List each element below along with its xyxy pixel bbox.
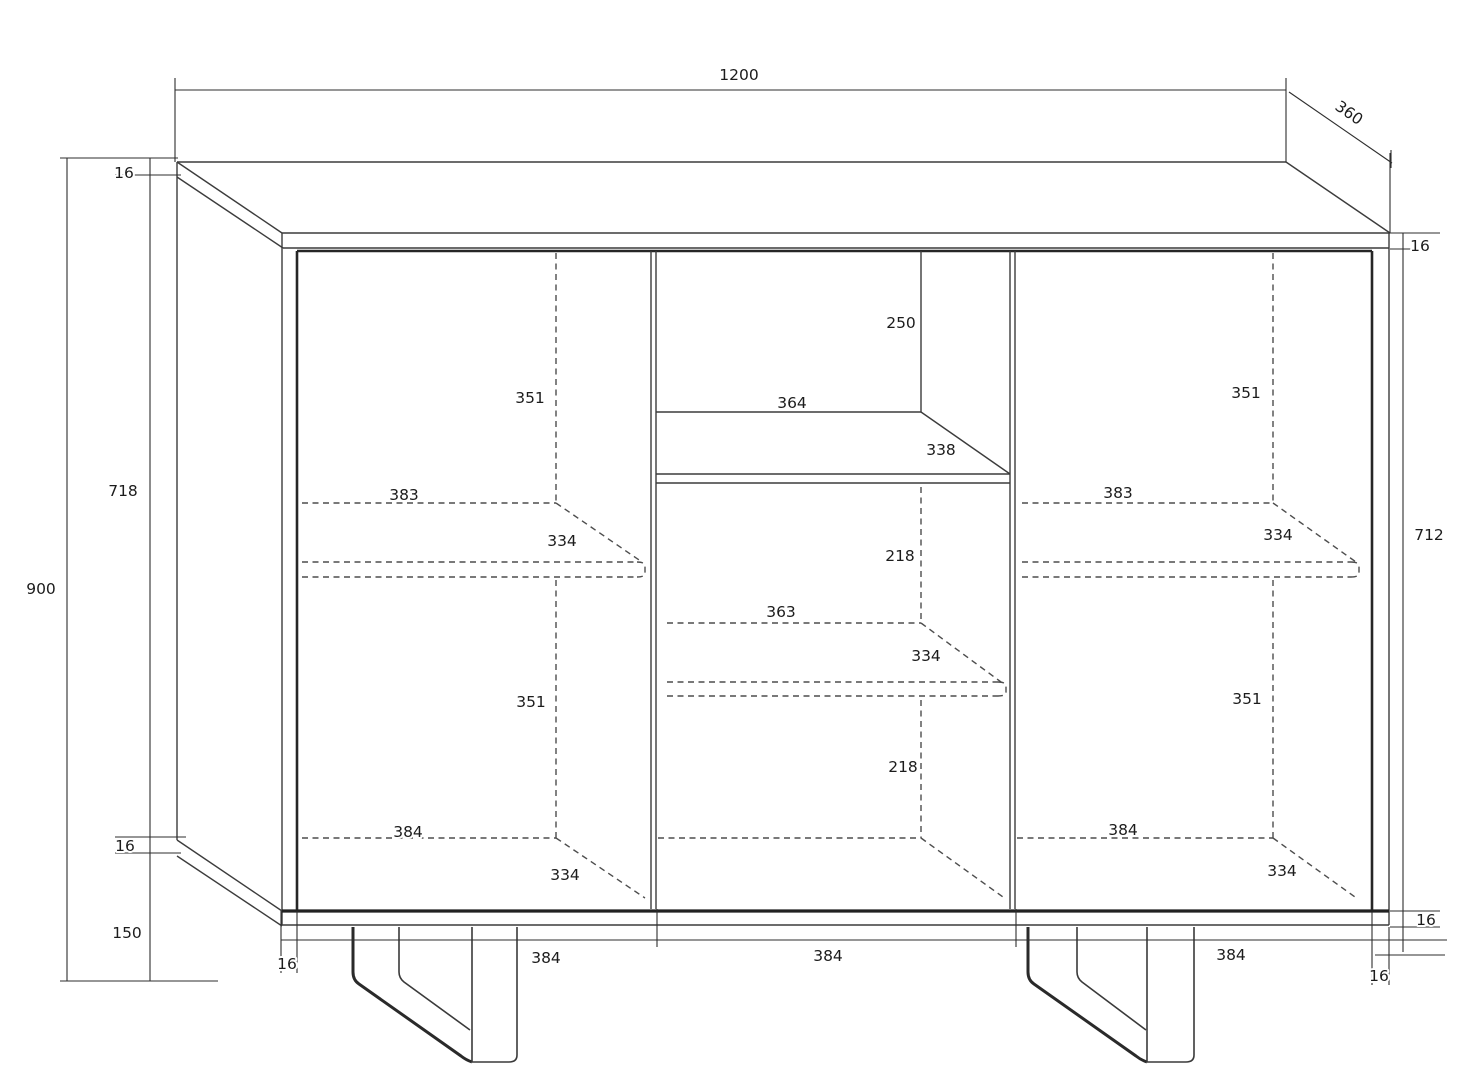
dim-label-door1-bottom-depth: 334 [550, 866, 580, 884]
dim-label-bottom-door1-width: 384 [531, 949, 561, 967]
dim-label-bottom-door3-width: 384 [1216, 946, 1246, 964]
dim-label-left-top-thickness: 16 [114, 164, 134, 182]
dim-label-total-height: 900 [26, 580, 56, 598]
technical-drawing-page: 1200 360 16 718 900 16 150 16 384 384 38… [0, 0, 1480, 1085]
dim-label-door3-lower-height: 351 [1232, 690, 1262, 708]
dim-label-door1-shelf-depth: 334 [547, 532, 577, 550]
left-side-panel-outline [177, 162, 282, 926]
dim-label-bottom-left-side-thickness: 16 [277, 955, 297, 973]
dim-label-door3-bottom-depth: 334 [1267, 862, 1297, 880]
dim-label-right-top-thickness: 16 [1410, 237, 1430, 255]
dim-label-door3-shelf-width: 383 [1103, 484, 1133, 502]
dim-label-door2-upper-height: 218 [885, 547, 915, 565]
dim-label-front-opening-height: 712 [1414, 526, 1444, 544]
dim-label-left-interior-height: 718 [108, 482, 138, 500]
dim-label-door2-shelf-depth: 334 [911, 647, 941, 665]
dim-label-bottom-right-side-thickness: 16 [1369, 967, 1389, 985]
middle-door-hidden-lines [658, 487, 1006, 897]
dim-label-leg-height: 150 [112, 924, 142, 942]
carcass-front-outline [282, 233, 1389, 925]
dim-label-door2-shelf-width: 363 [766, 603, 796, 621]
dim-label-right-bottom-thickness: 16 [1416, 911, 1436, 929]
dim-label-left-bottom-thickness: 16 [115, 837, 135, 855]
dim-label-door2-lower-height: 218 [888, 758, 918, 776]
right-leg [1028, 927, 1194, 1062]
left-door-hidden-lines [302, 253, 645, 898]
dimension-lines [60, 78, 1447, 985]
top-panel-outline [177, 162, 1390, 248]
dim-label-door3-bottom-width: 384 [1108, 821, 1138, 839]
dim-label-niche-height: 250 [886, 314, 916, 332]
dim-label-door1-shelf-width: 383 [389, 486, 419, 504]
door-gap-lines [651, 251, 1015, 909]
dim-label-niche-depth: 338 [926, 441, 956, 459]
dim-label-door1-lower-height: 351 [516, 693, 546, 711]
dim-label-door3-shelf-depth: 334 [1263, 526, 1293, 544]
dim-label-door1-upper-height: 351 [515, 389, 545, 407]
dim-label-overall-depth: 360 [1332, 97, 1367, 129]
dim-label-overall-width: 1200 [719, 66, 758, 84]
left-leg [353, 927, 517, 1062]
open-niche-outline [656, 251, 1010, 483]
dim-label-door1-bottom-width: 384 [393, 823, 423, 841]
sideboard-dimension-diagram: 1200 360 16 718 900 16 150 16 384 384 38… [0, 0, 1480, 1085]
right-door-hidden-lines [1017, 253, 1359, 897]
dim-label-niche-width: 364 [777, 394, 807, 412]
dim-label-door3-upper-height: 351 [1231, 384, 1261, 402]
dim-label-bottom-door2-width: 384 [813, 947, 843, 965]
